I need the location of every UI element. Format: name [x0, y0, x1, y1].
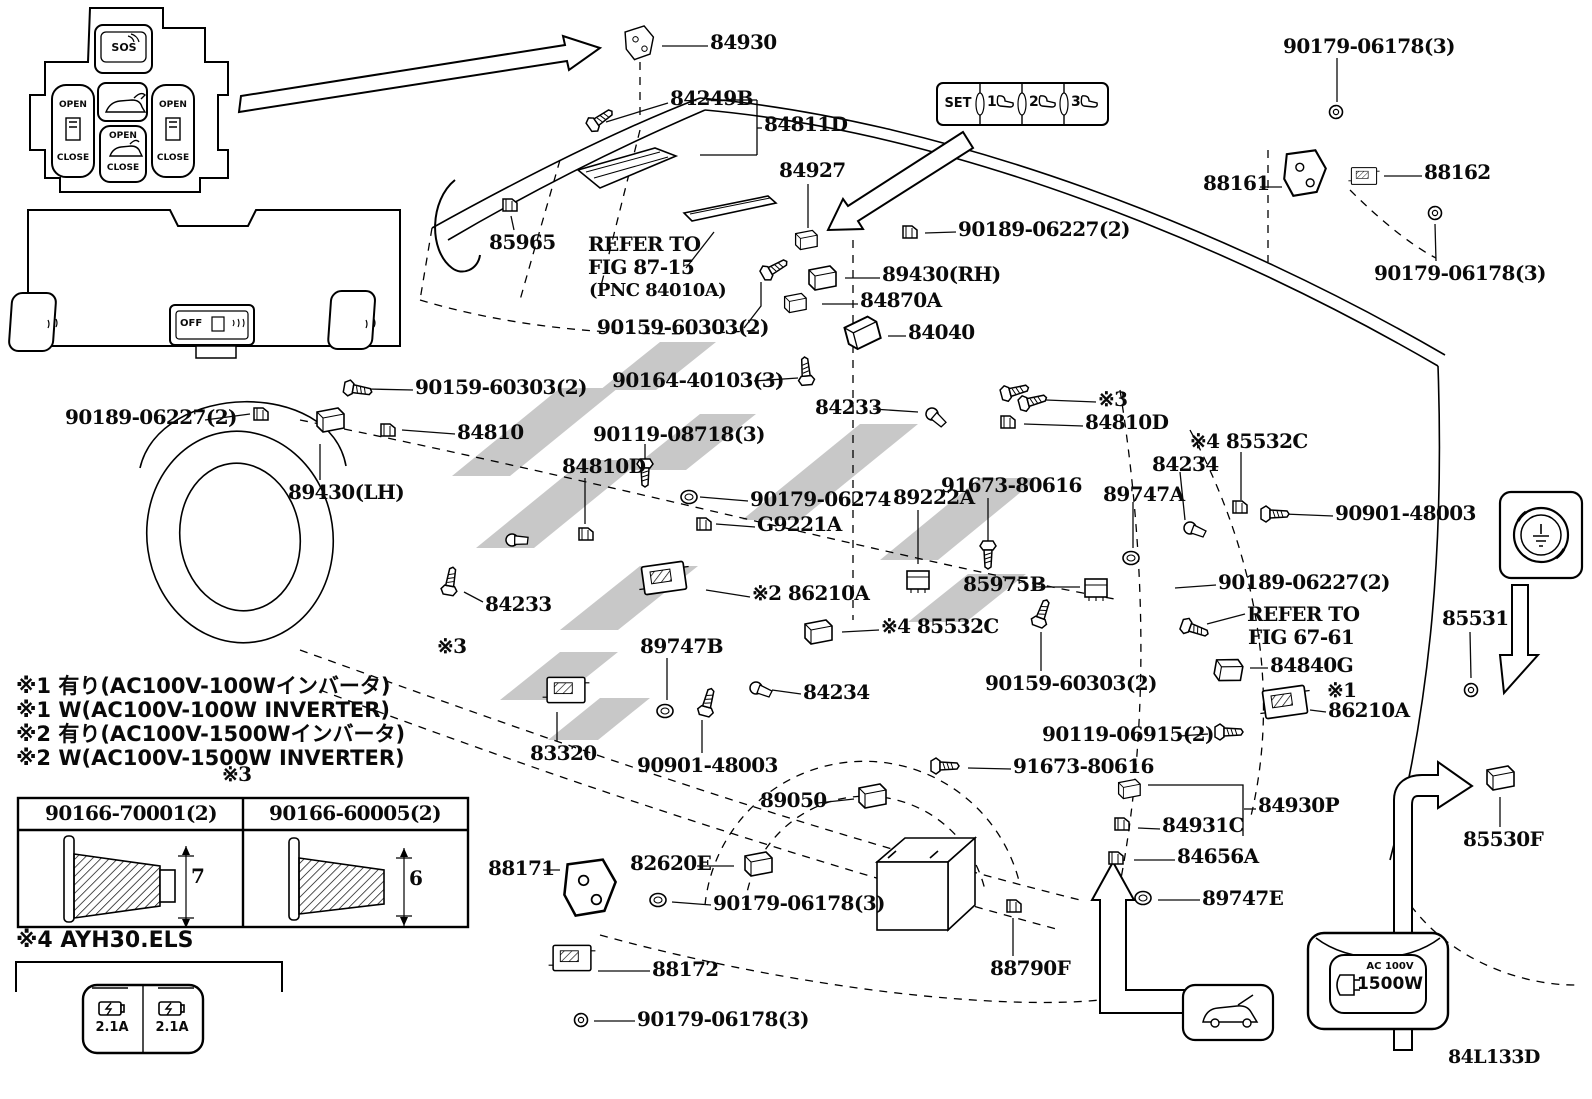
- part-label: 90179-06178(3): [637, 1009, 809, 1029]
- part-label: 84234: [1152, 454, 1219, 474]
- grommet-part-glyph: [657, 705, 673, 718]
- switch-part-glyph: [317, 408, 344, 432]
- part-label: G9221A: [757, 514, 842, 534]
- parts-diagram-page: SOS OPEN CLOSE OPEN CLOSE OPEN CLOSE OFF…: [0, 0, 1592, 1099]
- clip-part-glyph: [381, 424, 395, 436]
- right-pad: [328, 291, 376, 349]
- seat-2-label: 2: [1029, 95, 1039, 109]
- screw-part-glyph: [1261, 506, 1289, 522]
- clip-part-glyph: [1115, 818, 1129, 830]
- usb-amp-right: 2.1A: [146, 1021, 198, 1034]
- usb-charger-icon: [83, 985, 203, 1053]
- switch-part-glyph: [1119, 779, 1141, 798]
- part-label: 86210A: [1328, 700, 1410, 720]
- clip-part-glyph: [903, 226, 917, 238]
- part-label: 90179-06178(3): [1374, 263, 1546, 283]
- part-label: 84810: [457, 422, 524, 442]
- part-label: 84927: [779, 160, 846, 180]
- sensor-part-glyph: [1184, 522, 1206, 537]
- leader-line: [1046, 400, 1096, 402]
- part-label: 90159-60303(2): [985, 673, 1157, 693]
- module-part-glyph: [549, 945, 596, 970]
- arrow-down-left-icon: [828, 132, 973, 230]
- screw-part-glyph: [758, 255, 790, 283]
- relay-part-glyph: [907, 571, 929, 593]
- part-label: ※4 85532C: [1190, 431, 1308, 451]
- part-label: 90159-60303(2): [597, 317, 769, 337]
- part-label: 90901-48003: [637, 755, 778, 775]
- screw-part-glyph: [1179, 617, 1211, 642]
- part-label: 90179-06274: [750, 489, 891, 509]
- sos-label: SOS: [105, 42, 143, 53]
- part-label: ※4 AYH30.ELS: [16, 930, 193, 952]
- part-label: 89050: [760, 790, 827, 810]
- leader-line: [1284, 514, 1333, 516]
- part-label: (PNC 84010A): [589, 282, 726, 300]
- left-door-switch[interactable]: [52, 85, 94, 177]
- clip-part-glyph: [1233, 501, 1247, 513]
- part-label: ※2 有り(AC100V-1500Wインバータ): [16, 724, 405, 745]
- part-label: 84656A: [1177, 846, 1259, 866]
- module-part-glyph: [636, 561, 691, 596]
- part-label: 84234: [803, 682, 870, 702]
- part-label: ※3: [1098, 389, 1127, 409]
- part-label: ※1 有り(AC100V-100Wインバータ): [16, 676, 390, 697]
- part-label: 89747B: [640, 636, 723, 656]
- part-label: REFER TO: [1247, 604, 1359, 624]
- ground-symbol-icon: [1500, 492, 1582, 578]
- switch-part-glyph: [809, 266, 836, 290]
- part-label: FIG 67-61: [1248, 627, 1354, 647]
- leader-line: [1435, 224, 1436, 261]
- screw-part-glyph: [1030, 597, 1055, 629]
- leader-line: [716, 524, 755, 527]
- dim-6: 6: [409, 868, 422, 888]
- leader-line: [368, 389, 413, 390]
- part-label: 88171: [488, 858, 555, 878]
- arrow-up-icon: [1092, 862, 1188, 1013]
- leader-line: [968, 768, 1011, 769]
- screw-part-glyph: [440, 566, 461, 596]
- grommet-part-glyph: [1135, 892, 1151, 905]
- leader-line: [1310, 710, 1326, 712]
- part-label: 85975B: [963, 574, 1046, 594]
- part-label: 84810D: [1085, 412, 1168, 432]
- part-label: 84233: [485, 594, 552, 614]
- sensor-part-glyph: [923, 406, 949, 428]
- switch-part-glyph: [785, 293, 807, 312]
- arrow-bent-left-icon: [1500, 585, 1538, 693]
- watermark: [452, 342, 1038, 740]
- switch-part-glyph: [796, 230, 818, 249]
- clip-part-glyph: [503, 199, 517, 211]
- open-label: OPEN: [156, 101, 190, 110]
- bracketp-part-glyph: [564, 860, 615, 916]
- part-label: 83320: [530, 743, 597, 763]
- part-label: ※3: [437, 636, 466, 656]
- part-label: FIG 87-15: [588, 257, 694, 277]
- part-label: 84811D: [764, 114, 847, 134]
- close-label: CLOSE: [154, 154, 192, 163]
- clip-part-glyph: [579, 528, 593, 540]
- part-label: 84040: [908, 322, 975, 342]
- part-label: REFER TO: [588, 234, 700, 254]
- leader-line: [700, 497, 748, 501]
- switch-part-glyph: [805, 620, 832, 644]
- part-label: 89430(LH): [288, 482, 404, 502]
- module-part-glyph: [543, 677, 590, 702]
- part-label: 89747A: [1103, 484, 1185, 504]
- leader-line: [706, 590, 750, 597]
- close-label: CLOSE: [54, 154, 92, 163]
- part-label: 84810D: [562, 456, 645, 476]
- leader-line: [1470, 632, 1471, 678]
- leader-line: [772, 690, 801, 694]
- switch-part-glyph: [1213, 656, 1244, 684]
- part-label: ※2 86210A: [752, 583, 869, 603]
- module-part-glyph: [1257, 685, 1312, 720]
- table-header-2: 90166-60005(2): [245, 803, 465, 823]
- leader-line: [925, 232, 956, 233]
- dim-7: 7: [191, 866, 204, 886]
- part-label: 90159-60303(2): [415, 377, 587, 397]
- battery-sketch: [877, 838, 975, 930]
- part-label: 90119-08718(3): [593, 424, 765, 444]
- seat-1-label: 1: [987, 95, 997, 109]
- part-label: 90179-06178(3): [1283, 36, 1455, 56]
- part-label: 84840G: [1270, 655, 1353, 675]
- part-label: 85531: [1442, 608, 1509, 628]
- set-button-label: SET: [940, 97, 976, 110]
- door-icon: [212, 317, 224, 331]
- screw-part-glyph: [980, 541, 996, 569]
- open-label: OPEN: [109, 132, 137, 141]
- part-label: 88161: [1203, 173, 1270, 193]
- part-label: 88790F: [990, 958, 1070, 978]
- leader-line: [511, 216, 514, 230]
- grommet-part-glyph: [1123, 552, 1139, 565]
- part-label: 90189-06227(2): [1218, 572, 1390, 592]
- outlet-voltage-label: AC 100V: [1360, 962, 1420, 972]
- part-label: 84930P: [1258, 795, 1339, 815]
- part-label: 84930: [710, 32, 777, 52]
- part-label: ※4 85532C: [881, 616, 999, 636]
- nut-part-glyph: [1465, 684, 1478, 697]
- part-label: 90179-06178(3): [713, 893, 885, 913]
- right-door-switch[interactable]: [152, 85, 194, 177]
- part-label: 84L133D: [1448, 1048, 1540, 1067]
- leader-line: [1024, 424, 1083, 426]
- grommet-part-glyph: [681, 491, 697, 504]
- part-label: 89430(RH): [882, 264, 1001, 284]
- clip-part-glyph: [1007, 900, 1021, 912]
- switch-part-glyph: [745, 852, 772, 876]
- screw-part-glyph: [797, 356, 815, 385]
- table-header-1: 90166-70001(2): [20, 803, 242, 823]
- screw-part-glyph: [1215, 724, 1243, 740]
- part-label: 84249B: [670, 88, 753, 108]
- part-label: 89747E: [1202, 888, 1283, 908]
- leader-line: [606, 103, 668, 122]
- part-label: 90901-48003: [1335, 503, 1476, 523]
- bracketp-part-glyph: [1284, 150, 1326, 196]
- nut-part-glyph: [1429, 207, 1442, 220]
- leader-line: [464, 592, 483, 602]
- switch-part-glyph: [1487, 766, 1514, 790]
- clip-part-glyph: [254, 408, 268, 420]
- clip-part-glyph: [1109, 852, 1123, 864]
- nut-part-glyph: [575, 1014, 588, 1027]
- part-label: 91673-80616: [1013, 756, 1154, 776]
- bracketp-part-glyph: [623, 25, 657, 61]
- outlet-watt-label: 1500W: [1356, 976, 1424, 993]
- leader-line: [1175, 585, 1216, 588]
- part-label: 85965: [489, 232, 556, 252]
- off-label: OFF: [180, 319, 202, 329]
- screw-part-glyph: [343, 379, 373, 400]
- module-part-glyph: [1348, 168, 1379, 185]
- part-label: 90164-40103(3): [612, 370, 784, 390]
- rear-hatch-icon: [1183, 985, 1273, 1040]
- usb-amp-left: 2.1A: [86, 1021, 138, 1034]
- part-label: 88162: [1424, 162, 1491, 182]
- grommet-part-glyph: [650, 894, 666, 907]
- part-label: 90119-06915(2): [1042, 724, 1214, 744]
- relay-part-glyph: [1085, 579, 1107, 601]
- part-label: 85530F: [1463, 829, 1543, 849]
- part-label: ※1: [1327, 680, 1356, 700]
- part-label: ※1 W(AC100V-100W INVERTER): [16, 700, 390, 721]
- seat-3-label: 3: [1071, 95, 1081, 109]
- part-label: 90189-06227(2): [958, 219, 1130, 239]
- sensor-part-glyph: [750, 682, 772, 697]
- part-label: 88172: [652, 959, 719, 979]
- leader-line: [1207, 614, 1245, 624]
- close-label: CLOSE: [106, 164, 140, 173]
- part-label: 84870A: [860, 290, 942, 310]
- part-label: ※2 W(AC100V-1500W INVERTER): [16, 748, 405, 769]
- part-label: 82620E: [630, 853, 711, 873]
- screw-part-glyph: [931, 758, 959, 774]
- screw-part-glyph: [584, 105, 616, 134]
- part-label: 84931C: [1162, 815, 1244, 835]
- screw-part-glyph: [696, 687, 719, 718]
- leader-line: [842, 630, 879, 632]
- switch-part-glyph: [843, 315, 882, 351]
- garnish-panel: [8, 210, 400, 358]
- open-label: OPEN: [56, 101, 90, 110]
- switch-part-glyph: [859, 784, 886, 808]
- leader-line: [402, 430, 455, 434]
- leader-line: [1138, 828, 1160, 829]
- part-label: 90189-06227(2): [65, 407, 237, 427]
- arrow-right-icon: [239, 36, 600, 112]
- part-label: 89222A: [893, 487, 975, 507]
- part-label: 84233: [815, 397, 882, 417]
- nut-part-glyph: [1330, 106, 1343, 119]
- clip-part-glyph: [1001, 416, 1015, 428]
- clip-part-glyph: [697, 518, 711, 530]
